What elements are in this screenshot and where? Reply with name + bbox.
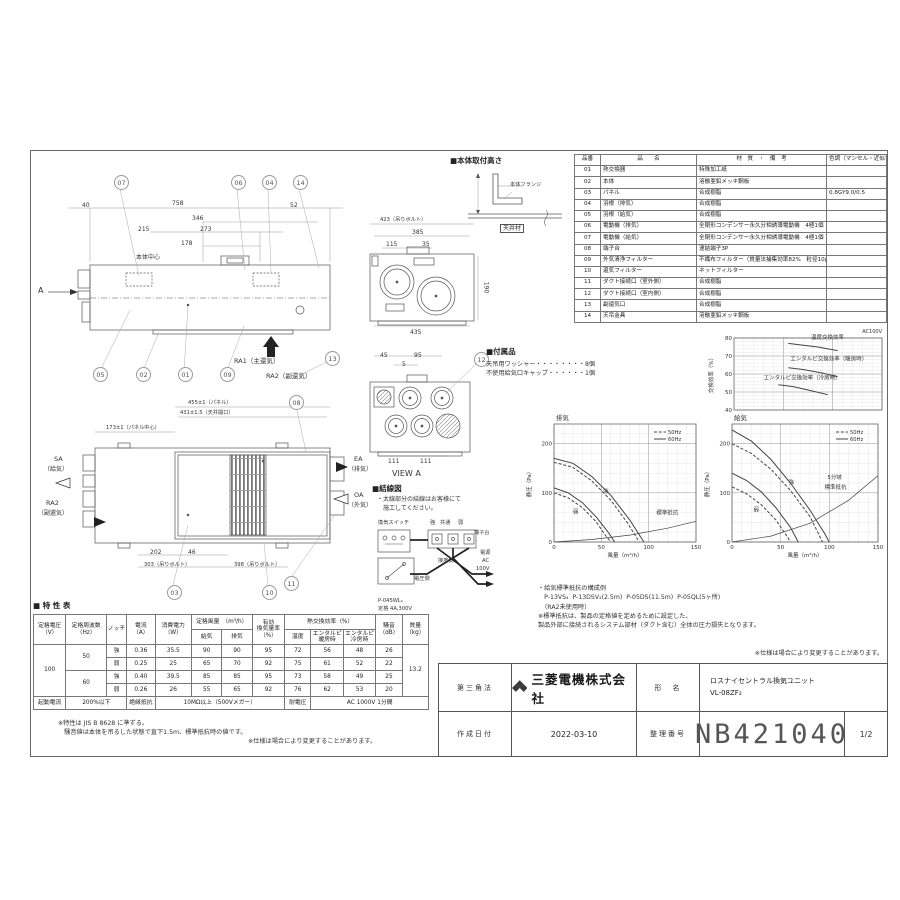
parts-table-row: 06 電動機（排気） 全閉形コンデンサー永久分相誘導電動機 4極1個 (575, 222, 887, 233)
dim-label: 398（吊りボルト） (234, 562, 280, 568)
svg-text:標準抵抗: 標準抵抗 (824, 483, 847, 491)
resistance-note-line1: ・給気標準抵抗の構成例 (538, 584, 882, 593)
svg-text:強: 強 (603, 487, 609, 495)
part-number: 13 (575, 300, 601, 311)
dim-label: 303（吊りボルト） (144, 562, 190, 568)
part-number: 09 (575, 255, 601, 266)
spec-note-2: 騒音値は本体を吊るした状態で直下1.5m、標準抵抗時の値です。 (58, 728, 247, 737)
dim-label: 178 (181, 240, 192, 247)
parts-table-row: 09 外気清浄フィルター 不織布フィルター（質量法捕集効率82% 粒径10μm以… (575, 255, 887, 266)
part-color (827, 222, 887, 233)
company-cell: 三菱電機株式会社 (511, 664, 636, 711)
part-number: 08 (575, 244, 601, 255)
accessories-section: ■付属品 天吊用ワッシャー・・・・・・・・8個 不使用給気口キャップ・・・・・・… (486, 346, 656, 379)
model-name: ロスナイセントラル換気ユニット VL-08ZF₂ (700, 676, 887, 698)
svg-text:50: 50 (725, 390, 732, 396)
company-name: 三菱電機株式会社 (512, 669, 636, 707)
resistance-note: ・給気標準抵抗の構成例 P-13VS₄ P-13DSV₂(2.5m) P-05D… (538, 584, 882, 630)
dim-label: 435 (410, 329, 421, 336)
part-color (827, 210, 887, 221)
balloon-02: 02 (136, 367, 151, 382)
spec-h-current: 電流 （A） (127, 615, 155, 645)
svg-text:60Hz: 60Hz (668, 437, 682, 443)
dim-label: 40 (82, 202, 90, 209)
model-label-cell: 形 名 (636, 664, 699, 711)
parts-table-body: 01 熱交換器 特殊加工紙 02 本体 溶融亜鉛メッキ鋼板 03 (575, 166, 887, 323)
spec-eff: 95 (252, 671, 284, 684)
dim-label: 190 (482, 282, 489, 293)
spec-voltage: 100 (34, 645, 66, 697)
spec-h-airflow: 定格風量 （m³/h） (191, 615, 252, 630)
spec-power: 25 (155, 658, 191, 671)
mitsubishi-logo-icon (512, 680, 527, 696)
svg-text:100: 100 (824, 545, 835, 551)
spec-h-supply: 給気 (191, 630, 221, 645)
parts-table-row: 02 本体 溶融亜鉛メッキ鋼板 (575, 177, 887, 188)
balloon-14: 14 (293, 175, 308, 190)
accessory-item-cap: 不使用給気口キャップ・・・・・・1個 (486, 369, 656, 378)
svg-text:0: 0 (552, 545, 556, 551)
part-material: 全閉形コンデンサー永久分相誘導電動機 4極1個 (697, 233, 827, 244)
spec-notch: 弱 (106, 684, 126, 697)
accessory-item-washer: 天吊用ワッシャー・・・・・・・・8個 (486, 360, 656, 369)
spec-h-enthalpy-heat: エンタルピ 暖房時 (311, 630, 343, 645)
dim-label: 215 (138, 226, 149, 233)
balloon-06: 06 (231, 175, 246, 190)
spec-ec: 52 (343, 658, 375, 671)
spec-sa: 65 (191, 658, 221, 671)
spec-table: 定格電圧 （V） 定格周波数 （Hz） ノッチ 電流 （A） 消費電力 （W） … (33, 614, 429, 710)
parts-header-color: 色調（マンセル・近似色） (827, 155, 887, 166)
supply-fan-curve-chart-svg: 0100200050100150強弱5分岐標準抵抗静圧（Pa）風量（m³/h）給… (702, 408, 886, 580)
balloon-07: 07 (114, 175, 129, 190)
date-cell: 2022-03-10 (511, 711, 636, 756)
number-label: 整理番号 (650, 729, 686, 739)
parts-header-no: 品番 (575, 155, 601, 166)
dim-label: 共通 (440, 520, 450, 526)
part-number: 07 (575, 233, 601, 244)
dim-label: （排気） (348, 466, 372, 473)
spec-temp: 73 (285, 671, 311, 684)
page-number: 1/2 (860, 730, 873, 739)
plan-view-drawing: 455±1（パネル）431±1.5（天井開口）173±1（パネル中心）SA（給気… (38, 395, 386, 607)
mount-height-geometry (448, 168, 573, 248)
parts-table-row: 11 ダクト接続口（室外側） 合成樹脂 (575, 278, 887, 289)
part-number: 14 (575, 311, 601, 322)
parts-header-name: 品 名 (601, 155, 697, 166)
part-material: ネットフィルター (697, 266, 827, 277)
part-material: 溶融亜鉛メッキ鋼板 (697, 177, 827, 188)
svg-text:0: 0 (730, 545, 734, 551)
part-color (827, 199, 887, 210)
svg-text:100: 100 (720, 491, 731, 497)
part-name: 電動機（排気） (601, 222, 697, 233)
svg-text:70: 70 (725, 354, 732, 360)
dim-label: （副還気） (38, 510, 68, 517)
dim-label: A (38, 286, 43, 296)
wiring-title: ■結線図 (372, 484, 402, 493)
drawing-page: 4075852346215273178本体中心ARA1（主還気）RA2（副還気）… (0, 0, 900, 900)
balloon-03: 03 (167, 585, 182, 600)
parts-table-row: 05 羽根（給気） 合成樹脂 (575, 210, 887, 221)
spec-noise: 22 (376, 658, 402, 671)
svg-text:風量（m³/h）: 風量（m³/h） (608, 552, 643, 559)
spec-current: 0.40 (127, 671, 155, 684)
dim-label: RA2（副還気） (266, 373, 311, 381)
dim-label: 385 (412, 229, 423, 236)
dim-label: RA1（主還気） (234, 358, 279, 366)
part-color (827, 266, 887, 277)
part-color (827, 244, 887, 255)
svg-text:60: 60 (725, 372, 732, 378)
part-number: 06 (575, 222, 601, 233)
svg-text:標準抵抗: 標準抵抗 (656, 508, 679, 516)
dim-label: 115 (386, 241, 397, 248)
dim-label: 431±1.5（天井開口） (180, 410, 234, 416)
part-number: 05 (575, 210, 601, 221)
projection-label: 第三角法 (457, 683, 493, 693)
svg-text:静圧（Pa）: 静圧（Pa） (703, 469, 711, 497)
spec-noise: 25 (376, 671, 402, 684)
spec-h-hx: 熱交換効率（%） (285, 615, 376, 630)
parts-table-row: 12 ダクト接続口（室内側） 合成樹脂 (575, 289, 887, 300)
date-label-cell: 作成日付 (439, 711, 511, 756)
spec-insulation: 10MΩ以上（500Vメガー） (155, 697, 285, 710)
balloon-13: 13 (325, 351, 340, 366)
parts-table-row: 14 天吊金具 溶融亜鉛メッキ鋼板 (575, 311, 887, 322)
svg-text:排気: 排気 (556, 413, 570, 422)
plan-view-geometry (38, 395, 386, 607)
svg-text:エンタルピ交換効率（暖房時）: エンタルピ交換効率（暖房時） (790, 355, 867, 363)
spec-eff: 92 (252, 684, 284, 697)
part-number: 10 (575, 266, 601, 277)
parts-table-row: 01 熱交換器 特殊加工紙 (575, 166, 887, 177)
part-name: 熱交換器 (601, 166, 697, 177)
part-color (827, 300, 887, 311)
parts-table-row: 10 還気フィルター ネットフィルター (575, 266, 887, 277)
spec-freq-60: 60 (66, 671, 107, 697)
parts-table-row: 07 電動機（給気） 全閉形コンデンサー永久分相誘導電動機 4極1個 (575, 233, 887, 244)
dim-label: 202 (150, 549, 161, 556)
date-label: 作成日付 (457, 729, 493, 739)
parts-table-section: 品番 品 名 材 質 ・ 備 考 色調（マンセル・近似色） 01 熱交換器 特殊… (574, 154, 886, 323)
parts-table: 品番 品 名 材 質 ・ 備 考 色調（マンセル・近似色） 01 熱交換器 特殊… (574, 154, 887, 323)
spec-notch: 強 (106, 645, 126, 658)
part-material: 不織布フィルター（質量法捕集効率82% 粒径10μm以上） (697, 255, 827, 266)
spec-power: 35.5 (155, 645, 191, 658)
dim-label: 接地側 (438, 558, 454, 564)
spec-eh: 56 (311, 645, 343, 658)
svg-text:80: 80 (725, 336, 732, 342)
title-block: 第三角法 三菱電機株式会社 形 名 ロスナイセントラル換気ユニット VL-08Z… (438, 663, 888, 757)
part-color (827, 233, 887, 244)
dim-label: 本体中心 (136, 254, 160, 261)
balloon-10: 10 (262, 585, 277, 600)
spec-h-effective: 有効 換気量率 （%） (252, 615, 284, 645)
spec-noise: 26 (376, 645, 402, 658)
part-number: 02 (575, 177, 601, 188)
svg-text:静圧（Pa）: 静圧（Pa） (525, 469, 533, 497)
spec-ec: 49 (343, 671, 375, 684)
spec-temp: 72 (285, 645, 311, 658)
dim-label: 95 (414, 352, 422, 359)
part-material: 溶融亜鉛メッキ鋼板 (697, 311, 827, 322)
wiring-note-1: ・太線部分の結線はお客様にて (377, 496, 461, 503)
model-name-line2: VL-08ZF₂ (710, 688, 887, 699)
dim-label: 455±1（パネル） (188, 400, 232, 406)
balloon-01: 01 (178, 367, 193, 382)
dim-label: 52 (290, 202, 298, 209)
spec-h-temp: 温度 (285, 630, 311, 645)
spec-freq-50: 50 (66, 645, 107, 671)
svg-text:150: 150 (873, 545, 884, 551)
part-name: パネル (601, 188, 697, 199)
part-name: ダクト接続口（室内側） (601, 289, 697, 300)
balloon-11: 11 (284, 576, 299, 591)
part-number: 04 (575, 199, 601, 210)
dim-label: 電源 (480, 550, 490, 556)
part-color (827, 166, 887, 177)
part-material: 合成樹脂 (697, 278, 827, 289)
resistance-note-line2: P-13VS₄ P-13DSV₂(2.5m) P-05DS(11.5m) P-0… (538, 593, 882, 602)
resistance-note-line3: （RA2未使用時） (538, 603, 882, 612)
spec-start-current-label: 起動電流 (34, 697, 66, 710)
dim-label: 35 (422, 241, 430, 248)
exhaust-fan-curve-chart: 0100200050100150強弱標準抵抗静圧（Pa）風量（m³/h）排気50… (524, 408, 704, 580)
spec-ea: 70 (222, 658, 252, 671)
part-color: 0.8GY9.0/0.5 (827, 188, 887, 199)
spec-eh: 61 (311, 658, 343, 671)
spec-noise: 20 (376, 684, 402, 697)
part-number: 03 (575, 188, 601, 199)
part-color (827, 255, 887, 266)
dim-label: SA (54, 456, 63, 464)
spec-h-freq: 定格周波数 （Hz） (66, 615, 107, 645)
svg-text:100: 100 (542, 491, 553, 497)
spec-h-voltage: 定格電圧 （V） (34, 615, 66, 645)
spec-change-note: ※仕様は場合により変更することがあります。 (248, 737, 376, 746)
resistance-note-line4: ※標準抵抗は、製品の定格値を定めるために設定した、 (538, 612, 882, 621)
part-name: 電動機（給気） (601, 233, 697, 244)
spec-notch: 強 (106, 671, 126, 684)
spec-title: ■ 特 性 表 (33, 600, 433, 611)
part-number: 12 (575, 289, 601, 300)
dim-label: （外気） (348, 502, 372, 509)
wiring-note-2: 施工してください。 (377, 505, 437, 512)
dim-label: 換気スイッチ (378, 520, 409, 526)
svg-text:150: 150 (691, 545, 702, 551)
dim-label: 111 (420, 458, 431, 465)
dim-label: RA2 (46, 500, 59, 508)
balloon-05: 05 (93, 367, 108, 382)
dim-label: 100V (476, 566, 489, 572)
part-material: 合成樹脂 (697, 289, 827, 300)
svg-text:50: 50 (777, 545, 784, 551)
side-view-drawing: 4075852346215273178本体中心ARA1（主還気）RA2（副還気）… (38, 170, 358, 384)
svg-text:強: 強 (788, 478, 794, 486)
spec-eff: 92 (252, 658, 284, 671)
number-cell: NB421040 (699, 711, 844, 756)
spec-h-enthalpy-cool: エンタルピ 冷房時 (343, 630, 375, 645)
accessories-title: ■付属品 (486, 346, 656, 357)
svg-text:100: 100 (643, 545, 654, 551)
dim-label: 758 (172, 200, 183, 207)
spec-ea: 85 (222, 671, 252, 684)
part-name: 羽根（排気） (601, 199, 697, 210)
spec-sa: 90 (191, 645, 221, 658)
part-name: 外気清浄フィルター (601, 255, 697, 266)
svg-text:50Hz: 50Hz (668, 430, 682, 436)
svg-text:風量（m³/h）: 風量（m³/h） (788, 552, 823, 559)
part-number: 11 (575, 278, 601, 289)
spec-insulation-label: 絶縁抵抗 (127, 697, 155, 710)
dim-label: 346 (192, 215, 203, 222)
svg-text:給気: 給気 (734, 413, 748, 422)
part-color (827, 311, 887, 322)
dim-label: 46 (188, 549, 196, 556)
dim-label: 273 (200, 226, 211, 233)
svg-text:エンタルピ交換効率（冷房時）: エンタルピ交換効率（冷房時） (764, 373, 841, 381)
spec-current: 0.25 (127, 658, 155, 671)
spec-temp: 75 (285, 658, 311, 671)
spec-withstand: AC 1000V 1分間 (311, 697, 429, 710)
spec-change-note-charts: ※仕様は場合により変更することがあります。 (655, 649, 883, 658)
exhaust-fan-curve-chart-svg: 0100200050100150強弱標準抵抗静圧（Pa）風量（m³/h）排気50… (524, 408, 704, 580)
parts-table-row: 03 パネル 合成樹脂 0.8GY9.0/0.5 (575, 188, 887, 199)
projection-cell: 第三角法 (439, 664, 511, 711)
part-material: 合成樹脂 (697, 300, 827, 311)
part-material: 合成樹脂 (697, 199, 827, 210)
spec-h-power: 消費電力 （W） (155, 615, 191, 645)
dim-label: AC (482, 558, 489, 564)
part-color (827, 289, 887, 300)
document-number: NB421040 (695, 719, 849, 750)
company-text: 三菱電機株式会社 (531, 669, 636, 707)
spec-h-noise: 騒音 （dB） (376, 615, 402, 645)
model-label: 形 名 (655, 683, 682, 693)
svg-text:200: 200 (542, 442, 553, 448)
dim-label: 電圧側 (414, 576, 430, 582)
spec-sa: 55 (191, 684, 221, 697)
spec-power: 26 (155, 684, 191, 697)
svg-text:弱: 弱 (753, 507, 759, 514)
creation-date: 2022-03-10 (551, 730, 598, 739)
spec-eff: 95 (252, 645, 284, 658)
svg-text:50Hz: 50Hz (850, 430, 864, 436)
svg-text:200: 200 (720, 442, 731, 448)
spec-eh: 58 (311, 671, 343, 684)
spec-section: ■ 特 性 表 定格電圧 （V） 定格周波数 （Hz） ノッチ 電流 （A） 消… (33, 600, 433, 710)
resistance-note-line5: 製品外部に接続されるシステム部材（ダクト含む）全体の圧力損失となります。 (538, 621, 882, 630)
parts-header-row: 品番 品 名 材 質 ・ 備 考 色調（マンセル・近似色） (575, 155, 887, 166)
part-name: 端子台 (601, 244, 697, 255)
spec-ea: 90 (222, 645, 252, 658)
part-material: 合成樹脂 (697, 188, 827, 199)
spec-ec: 48 (343, 645, 375, 658)
part-name: 天吊金具 (601, 311, 697, 322)
spec-current: 0.26 (127, 684, 155, 697)
spec-start-current: 200%以下 (66, 697, 127, 710)
dim-label: 423（吊りボルト） (380, 217, 426, 223)
mount-height-detail: ■本体取付高さ 本体フランジ天井材 (448, 156, 573, 251)
spec-note-1: ※特性は JIS B 8628 に準ずる。 (58, 719, 148, 728)
spec-h-mass: 質量 （kg） (402, 615, 428, 645)
part-material: 速結端子3P (697, 244, 827, 255)
dim-label: 端子台 (474, 530, 490, 536)
model-name-line1: ロスナイセントラル換気ユニット (710, 676, 887, 687)
spec-eh: 62 (311, 684, 343, 697)
model-cell: ロスナイセントラル換気ユニット VL-08ZF₂ (699, 664, 887, 711)
svg-text:5分岐: 5分岐 (827, 473, 842, 481)
svg-text:50: 50 (598, 545, 605, 551)
spec-power: 39.5 (155, 671, 191, 684)
spec-temp: 76 (285, 684, 311, 697)
svg-text:弱: 弱 (573, 508, 579, 515)
balloon-09: 09 (220, 367, 235, 382)
parts-table-row: 04 羽根（排気） 合成樹脂 (575, 199, 887, 210)
number-label-cell: 整理番号 (636, 711, 699, 756)
dim-label: 45 (380, 352, 388, 359)
parts-table-row: 08 端子台 速結端子3P (575, 244, 887, 255)
dim-label: 本体フランジ (510, 182, 541, 188)
svg-text:60Hz: 60Hz (850, 437, 864, 443)
spec-h-notch: ノッチ (106, 615, 126, 645)
spec-ec: 53 (343, 684, 375, 697)
part-color (827, 177, 887, 188)
part-number: 01 (575, 166, 601, 177)
spec-sa: 85 (191, 671, 221, 684)
parts-table-row: 13 副還気口 合成樹脂 (575, 300, 887, 311)
dim-label: 強 (430, 520, 435, 526)
part-material: 合成樹脂 (697, 210, 827, 221)
part-name: 副還気口 (601, 300, 697, 311)
dim-label: VIEW A (392, 469, 421, 479)
part-name: ダクト接続口（室外側） (601, 278, 697, 289)
dim-label: 天井材 (500, 224, 524, 233)
part-name: 本体 (601, 177, 697, 188)
dim-label: 111 (388, 458, 399, 465)
mount-height-title: ■本体取付高さ (450, 156, 502, 165)
part-name: 還気フィルター (601, 266, 697, 277)
spec-withstand-label: 耐電圧 (285, 697, 311, 710)
part-name: 羽根（給気） (601, 210, 697, 221)
spec-ea: 65 (222, 684, 252, 697)
svg-text:AC100V: AC100V (862, 329, 882, 335)
balloon-08: 08 (289, 395, 304, 410)
svg-text:温度交換効率: 温度交換効率 (811, 333, 845, 341)
parts-header-material: 材 質 ・ 備 考 (697, 155, 827, 166)
part-material: 全閉形コンデンサー永久分相誘導電動機 4極1個 (697, 222, 827, 233)
dim-label: （給気） (44, 466, 68, 473)
svg-text:交換効率（%）: 交換効率（%） (707, 355, 715, 393)
dim-label: 弱 (458, 520, 463, 526)
dim-label: EA (354, 456, 363, 464)
supply-fan-curve-chart: 0100200050100150強弱5分岐標準抵抗静圧（Pa）風量（m³/h）給… (702, 408, 886, 580)
spec-h-exhaust: 排気 (222, 630, 252, 645)
part-color (827, 278, 887, 289)
part-material: 特殊加工紙 (697, 166, 827, 177)
balloon-04: 04 (262, 175, 277, 190)
page-cell: 1/2 (844, 711, 887, 756)
dim-label: OA (354, 492, 363, 500)
dim-label: 173±1（パネル中心） (106, 425, 160, 431)
spec-mass: 13.2 (402, 645, 428, 697)
spec-notch: 弱 (106, 658, 126, 671)
spec-current: 0.36 (127, 645, 155, 658)
dim-label: 5 (402, 361, 406, 368)
